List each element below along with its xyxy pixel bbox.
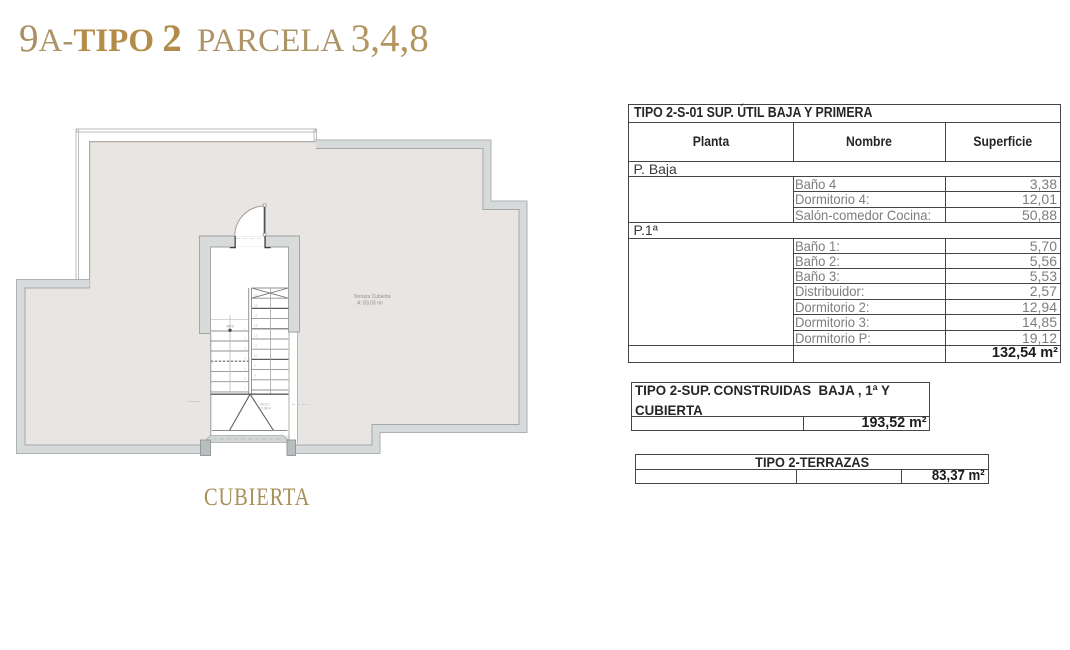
svg-text:14: 14 [254, 314, 258, 318]
svg-text:Terraza Cubierta: Terraza Cubierta [354, 294, 391, 300]
svg-text:11: 11 [254, 344, 257, 348]
svg-text:12: 12 [254, 334, 258, 338]
svg-text:4970: 4970 [226, 325, 234, 329]
svg-text:16: 16 [254, 294, 258, 298]
svg-text:A: 83,03 m²: A: 83,03 m² [357, 301, 383, 307]
svg-text:15: 15 [254, 304, 258, 308]
svg-text:17,08 H: 17,08 H [259, 407, 271, 411]
svg-text:10: 10 [254, 354, 258, 358]
svg-text:13: 13 [254, 324, 258, 328]
